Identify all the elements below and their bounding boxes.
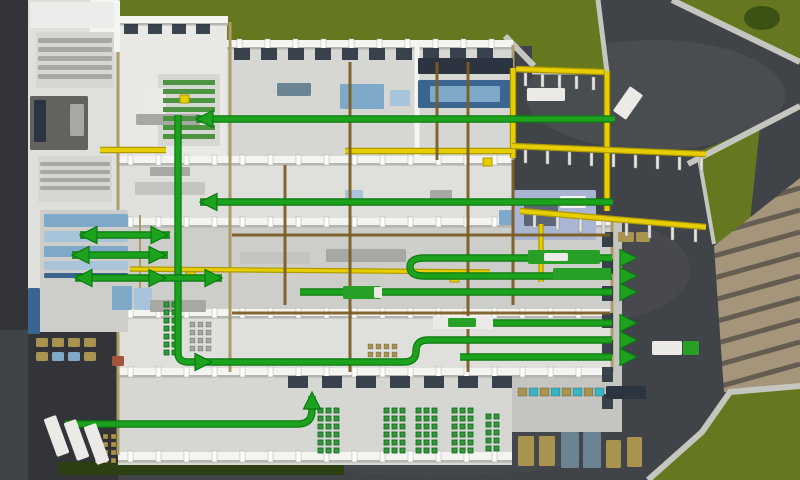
- pallet-bl: [52, 352, 64, 361]
- pilaster: [212, 217, 217, 227]
- floor-pallets: [326, 440, 331, 445]
- pipe-post: [700, 158, 703, 171]
- floor-pallets: [400, 432, 405, 437]
- pipe-post: [524, 150, 527, 163]
- dock-door: [390, 376, 410, 388]
- floor-pallets: [416, 440, 421, 445]
- floor-pallets: [326, 432, 331, 437]
- floor-pallets: [318, 424, 323, 429]
- pipe-post: [625, 223, 628, 236]
- pilaster: [240, 155, 245, 165]
- grey-pallets: [206, 338, 211, 343]
- pilaster: [352, 217, 357, 227]
- floor-pallets: [486, 414, 491, 419]
- dock-pallet: [562, 388, 571, 396]
- h3-blue: [345, 190, 363, 199]
- annex-grey-unit: [70, 104, 84, 136]
- floor-pallets: [494, 414, 499, 419]
- pilaster: [128, 451, 133, 462]
- pipe-post: [546, 151, 549, 164]
- pipe-post: [602, 221, 605, 234]
- floor-pallets: [318, 440, 323, 445]
- pallet-bl: [52, 338, 64, 347]
- annex-roof: [30, 2, 114, 28]
- pallet-bl: [84, 338, 96, 347]
- grey-pallets: [190, 322, 195, 327]
- pilaster: [408, 217, 413, 227]
- pilaster: [380, 367, 385, 377]
- pilaster: [156, 451, 161, 462]
- floor-pallets: [400, 440, 405, 445]
- pilaster: [436, 217, 441, 227]
- tables: [392, 344, 397, 349]
- floor-pallets: [384, 424, 389, 429]
- dock-pallet: [551, 388, 560, 396]
- machine-blue-big-top: [430, 86, 500, 102]
- tables: [376, 344, 381, 349]
- annex-shelf: [38, 56, 112, 61]
- pilaster: [548, 367, 553, 377]
- storage-rack-row: [163, 107, 215, 112]
- pilaster: [433, 39, 438, 49]
- rooftop-unit: [234, 48, 250, 60]
- floor-pallets: [416, 416, 421, 421]
- floor-pallets: [452, 416, 457, 421]
- pipe-post: [568, 152, 571, 165]
- pilaster: [492, 367, 497, 377]
- h3-desk: [150, 167, 190, 176]
- floor-pallets: [494, 446, 499, 451]
- dock-pallet: [518, 388, 527, 396]
- floor-pallets: [318, 432, 323, 437]
- machine-blue: [390, 90, 410, 106]
- pilaster: [492, 217, 497, 227]
- annex-shelf: [38, 38, 112, 43]
- floor-pallets: [432, 424, 437, 429]
- truck-dock: [518, 436, 534, 466]
- pilaster: [349, 39, 354, 49]
- floor-pallets: [494, 438, 499, 443]
- truck-road-top: [527, 88, 565, 101]
- annex-shelf: [38, 47, 112, 52]
- yard-pallets: [111, 442, 116, 447]
- pilaster: [184, 217, 189, 227]
- pipe-post: [648, 225, 651, 238]
- dock-right-area: [512, 372, 612, 432]
- rooftop-unit: [342, 48, 358, 60]
- pilaster: [293, 39, 298, 49]
- pilaster: [408, 155, 413, 165]
- pilaster: [128, 367, 133, 377]
- pipe-post: [556, 217, 559, 230]
- press-machine-top: [544, 253, 568, 261]
- train-body: [448, 318, 476, 327]
- floor-pallets: [460, 448, 465, 453]
- floor-pallets: [486, 438, 491, 443]
- pipe-post: [558, 75, 561, 88]
- h3-desk: [135, 182, 205, 195]
- annex-shelf: [38, 74, 112, 79]
- dock-door: [288, 376, 308, 388]
- dock-pallet: [540, 388, 549, 396]
- press-box: [112, 286, 132, 310]
- storage-rack-row: [163, 134, 215, 139]
- floor-pallets: [452, 440, 457, 445]
- pilaster: [184, 451, 189, 462]
- roof-band: [418, 58, 513, 74]
- floor-pallets: [326, 448, 331, 453]
- floor-pallets: [468, 432, 473, 437]
- forklift: [483, 158, 492, 166]
- yard-pallets: [111, 450, 116, 455]
- annex-roof-unit: [124, 24, 138, 34]
- pilaster: [380, 217, 385, 227]
- dock-pallet: [573, 388, 582, 396]
- rooftop-unit: [315, 48, 331, 60]
- grey-pallets: [198, 330, 203, 335]
- yard-pallets: [103, 434, 108, 439]
- grey-pallets: [206, 330, 211, 335]
- annex-shelf: [40, 162, 110, 166]
- floor-pallets: [494, 422, 499, 427]
- rooftop-unit: [396, 48, 412, 60]
- grey-pallets: [206, 322, 211, 327]
- bush: [744, 6, 780, 30]
- dock-pallet: [595, 388, 604, 396]
- floor-pallets: [468, 416, 473, 421]
- rooftop-unit: [288, 48, 304, 60]
- grey-pallets: [198, 338, 203, 343]
- press-grey: [240, 252, 310, 264]
- floor-pallets: [424, 432, 429, 437]
- pipe-post: [671, 227, 674, 240]
- floor-pallets: [424, 424, 429, 429]
- pressroom-floor: [40, 210, 128, 332]
- floor-pallets: [460, 416, 465, 421]
- pilaster: [352, 451, 357, 462]
- tables: [376, 352, 381, 357]
- pilaster: [128, 217, 133, 227]
- floor-pallets: [318, 416, 323, 421]
- grey-pallets: [198, 346, 203, 351]
- pilaster: [296, 367, 301, 377]
- floor-pallets: [392, 416, 397, 421]
- grey-pallets: [198, 322, 203, 327]
- floor-pallets: [460, 432, 465, 437]
- floor-pallets: [432, 416, 437, 421]
- floor-pallets: [326, 416, 331, 421]
- pallet-red: [112, 356, 124, 366]
- floor-pallets: [452, 424, 457, 429]
- pilaster: [212, 451, 217, 462]
- floor-pallets: [384, 448, 389, 453]
- machine-blue: [340, 84, 384, 109]
- pilaster: [268, 451, 273, 462]
- truck-dock: [583, 432, 601, 468]
- floor-pallets: [486, 446, 491, 451]
- floor-pallets: [392, 408, 397, 413]
- pilaster: [184, 367, 189, 377]
- floor-pallets: [334, 432, 339, 437]
- pipe-post: [678, 157, 681, 170]
- pilaster: [461, 39, 466, 49]
- floor-pallets: [392, 440, 397, 445]
- press-grey: [326, 249, 406, 262]
- pilaster: [268, 367, 273, 377]
- grey-pallets: [206, 346, 211, 351]
- floor-pallets: [416, 432, 421, 437]
- floor-pallets: [334, 424, 339, 429]
- pilaster: [352, 367, 357, 377]
- floor-pallets: [468, 408, 473, 413]
- pilaster: [408, 367, 413, 377]
- floor-pallets: [416, 408, 421, 413]
- plant-flow-illustration: [0, 0, 800, 480]
- pilaster: [377, 39, 382, 49]
- pallet-bl: [36, 338, 48, 347]
- floor-pallets: [400, 424, 405, 429]
- pilaster: [128, 155, 133, 165]
- pallet-bl: [36, 352, 48, 361]
- floor-pallets: [334, 440, 339, 445]
- press-box: [134, 288, 152, 310]
- pilaster: [492, 451, 497, 462]
- annex-blue-edge: [28, 288, 40, 334]
- pilaster: [321, 39, 326, 49]
- floor-pallets: [494, 430, 499, 435]
- right-dock-door: [602, 367, 613, 382]
- annex-shelf: [40, 186, 110, 190]
- trunk-pallets: [164, 334, 169, 339]
- tables: [384, 352, 389, 357]
- pipe-post: [533, 215, 536, 228]
- yard-pallets: [111, 458, 116, 463]
- storage-rack-row: [163, 80, 215, 85]
- rooftop-unit: [369, 48, 385, 60]
- floor-pallets: [384, 416, 389, 421]
- annex-shelf: [40, 170, 110, 174]
- pilaster: [380, 155, 385, 165]
- dock-door: [322, 376, 342, 388]
- pilaster: [405, 39, 410, 49]
- yard-pallets: [111, 434, 116, 439]
- pipe-post: [590, 153, 593, 166]
- floor-pallets: [460, 440, 465, 445]
- rooftop-unit: [261, 48, 277, 60]
- pilaster: [436, 367, 441, 377]
- floor-pallets: [432, 440, 437, 445]
- trunk-pallets: [164, 326, 169, 331]
- floor-pallets: [334, 408, 339, 413]
- grey-pallets: [190, 346, 195, 351]
- truck-cab-br: [683, 341, 699, 355]
- pilaster: [240, 367, 245, 377]
- pipe-post: [579, 219, 582, 232]
- floor-pallets: [424, 440, 429, 445]
- floor-pallets: [318, 448, 323, 453]
- floor-pallets: [326, 408, 331, 413]
- dock-door: [424, 376, 444, 388]
- pilaster: [265, 39, 270, 49]
- dock-pallet: [529, 388, 538, 396]
- annex-shelf: [38, 65, 112, 70]
- green-truck-cab: [374, 287, 382, 298]
- pilaster: [492, 155, 497, 165]
- pilaster: [520, 367, 525, 377]
- pilaster: [296, 155, 301, 165]
- floor-pallets: [468, 440, 473, 445]
- pilaster: [324, 217, 329, 227]
- annex-roof-unit: [196, 24, 210, 34]
- truck-dock: [539, 436, 555, 466]
- floor-pallets: [416, 448, 421, 453]
- annex-roof-unit: [148, 24, 162, 34]
- floor-pallets: [392, 424, 397, 429]
- pipe-post: [634, 155, 637, 168]
- grass-a: [532, 0, 607, 72]
- pilaster: [352, 155, 357, 165]
- floor-pallets: [468, 424, 473, 429]
- floor-pallets: [468, 448, 473, 453]
- pilaster: [156, 155, 161, 165]
- pallet-bl: [68, 352, 80, 361]
- wall-4-shadow: [118, 316, 612, 319]
- pilaster: [184, 155, 189, 165]
- wall-bottom-shadow: [118, 460, 512, 463]
- trunk-pallets: [164, 302, 169, 307]
- trunk-pallets: [164, 310, 169, 315]
- pilaster: [296, 217, 301, 227]
- pipe-post: [575, 76, 578, 89]
- pipe-post: [656, 156, 659, 169]
- pilaster: [237, 39, 242, 49]
- hall-truck: [277, 83, 311, 96]
- floor-pallets: [486, 430, 491, 435]
- floor-pallets: [452, 408, 457, 413]
- pilaster: [240, 451, 245, 462]
- pilaster: [324, 367, 329, 377]
- pipe-post: [524, 73, 527, 86]
- plant-cutaway-svg: [0, 0, 800, 480]
- floor-pallets: [486, 422, 491, 427]
- floor-pallets: [432, 408, 437, 413]
- forklift: [180, 95, 189, 103]
- floor-pallets: [334, 416, 339, 421]
- pilaster: [212, 155, 217, 165]
- tables: [392, 352, 397, 357]
- pilaster: [240, 217, 245, 227]
- annex-roof-unit: [172, 24, 186, 34]
- pipe-post: [612, 154, 615, 167]
- floor-pallets: [400, 448, 405, 453]
- trunk-pallets: [164, 318, 169, 323]
- floor-pallets: [392, 432, 397, 437]
- pallet-bl: [68, 338, 80, 347]
- floor-pallets: [384, 440, 389, 445]
- floor-pallets: [416, 424, 421, 429]
- tables: [384, 344, 389, 349]
- pilaster: [268, 217, 273, 227]
- tables: [368, 344, 373, 349]
- pipe-post: [592, 77, 595, 90]
- pilaster: [156, 367, 161, 377]
- truck-dock: [606, 440, 621, 468]
- floor-pallets: [334, 448, 339, 453]
- grey-pallets: [190, 330, 195, 335]
- pilaster: [408, 451, 413, 462]
- pipe-post: [541, 74, 544, 87]
- dock-rack: [606, 386, 646, 399]
- pilaster: [212, 308, 217, 318]
- pilaster: [212, 367, 217, 377]
- annex-shelf: [40, 178, 110, 182]
- floor-pallets: [424, 448, 429, 453]
- floor-pallets: [392, 448, 397, 453]
- floor-pallets: [424, 408, 429, 413]
- dock-door: [492, 376, 512, 388]
- dock-pallet: [584, 388, 593, 396]
- dock-door: [458, 376, 478, 388]
- press-slab: [44, 214, 128, 227]
- trunk-pallets: [164, 350, 169, 355]
- floor-pallets: [452, 448, 457, 453]
- floor-pallets: [400, 416, 405, 421]
- tables: [368, 352, 373, 357]
- floor-pallets: [384, 432, 389, 437]
- pilaster: [268, 155, 273, 165]
- pilaster: [324, 155, 329, 165]
- pilaster: [296, 451, 301, 462]
- floor-pallets: [460, 408, 465, 413]
- truck-trailer-br: [652, 341, 682, 355]
- pilaster: [489, 39, 494, 49]
- floor-pallets: [432, 448, 437, 453]
- pilaster: [576, 367, 581, 377]
- truck-dock: [561, 432, 579, 468]
- pilaster: [156, 217, 161, 227]
- annex-dark-unit: [34, 100, 46, 142]
- storage-rack-row: [163, 125, 215, 130]
- floor-pallets: [432, 432, 437, 437]
- truck-dock: [627, 437, 642, 467]
- floor-pallets: [400, 408, 405, 413]
- floor-pallets: [460, 424, 465, 429]
- floor-pallets: [452, 432, 457, 437]
- trunk-pallets: [164, 342, 169, 347]
- pallet-bl: [84, 352, 96, 361]
- floor-pallets: [384, 408, 389, 413]
- floor-pallets: [424, 416, 429, 421]
- floor-pallets: [326, 424, 331, 429]
- pipe-post: [694, 229, 697, 242]
- grey-pallets: [190, 338, 195, 343]
- storage-rack-row: [163, 89, 215, 94]
- dock-door: [356, 376, 376, 388]
- press-machine: [553, 268, 611, 280]
